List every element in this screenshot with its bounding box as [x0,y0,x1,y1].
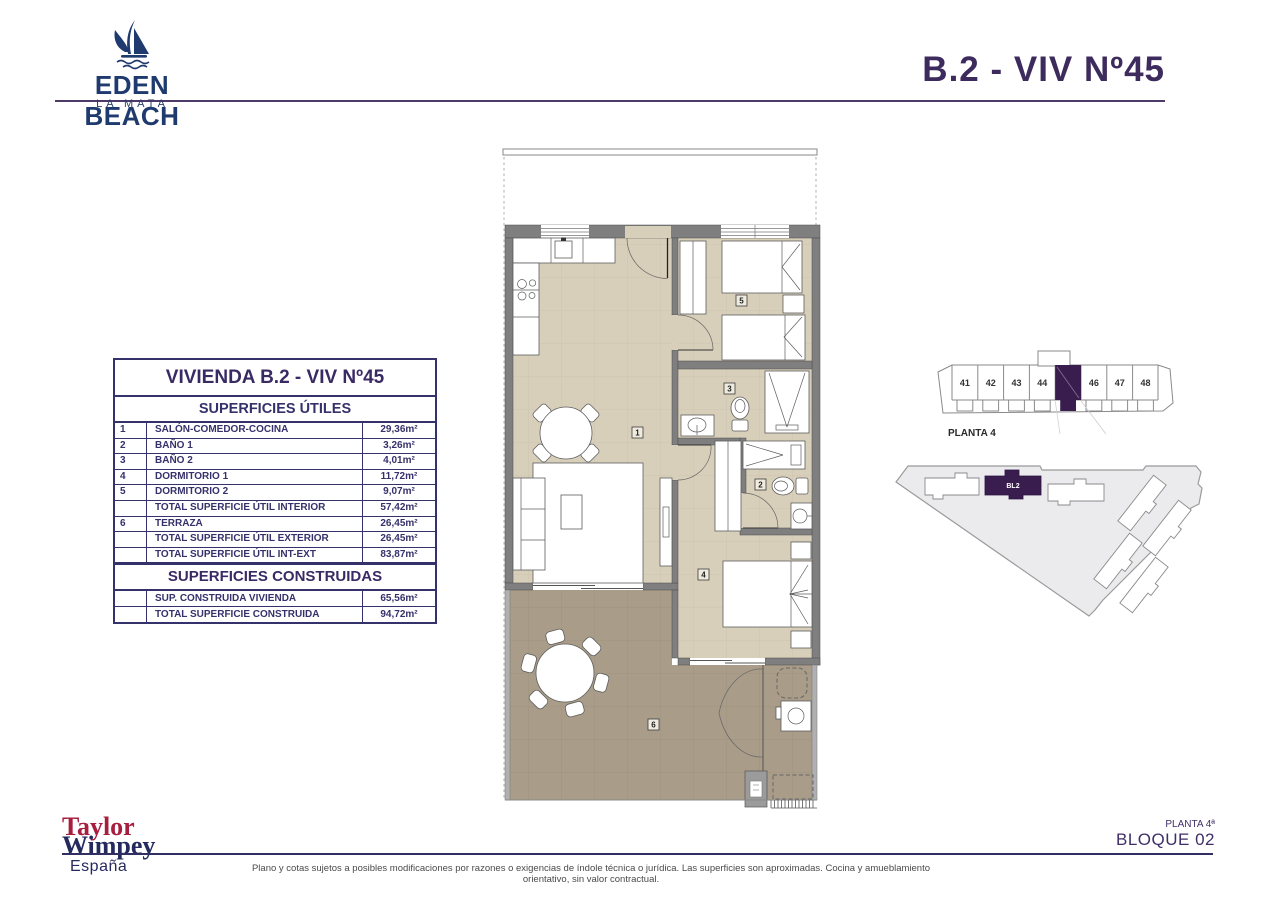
washer-icon [776,701,811,731]
svg-text:46: 46 [1089,378,1099,388]
useful-areas-table: VIVIENDA B.2 - VIV Nº45 SUPERFICIES ÚTIL… [113,358,437,564]
roof-edge [503,149,817,155]
entry-opening [625,226,671,238]
svg-text:48: 48 [1140,378,1150,388]
room-label-6: 6 [648,719,659,730]
table-row: 5DORMITORIO 29,07m² [115,485,435,501]
disclaimer-text: Plano y cotas sujetos a posibles modific… [247,863,935,885]
logo-subtitle: LA MATA [80,98,185,110]
table-title: SUPERFICIES CONSTRUIDAS [115,565,435,591]
table-row: TOTAL SUPERFICIE CONSTRUIDA94,72m² [115,607,435,622]
svg-text:1: 1 [635,429,640,438]
railing-hatch [771,800,817,808]
room-label-5: 5 [736,295,747,306]
double-bed [723,561,812,627]
svg-text:47: 47 [1115,378,1125,388]
table-row: SUP. CONSTRUIDA VIVIENDA65,56m² [115,591,435,607]
brand-country: España [70,858,127,876]
header-rule [55,100,1165,102]
block-label: BLOQUE 02 [1000,830,1215,850]
block-diagram: 41 42 43 44 46 47 48 PLANTA 4 [930,338,1190,443]
coffee-table [561,495,582,529]
page-title: B.2 - VIV Nº45 [700,50,1165,90]
table-row: TOTAL SUPERFICIE ÚTIL INTERIOR57,42m² [115,501,435,517]
room-label-2: 2 [755,479,766,490]
sink-icon [791,503,812,529]
svg-text:3: 3 [727,385,732,394]
table-row: TOTAL SUPERFICIE ÚTIL INT-EXT83,87m² [115,548,435,563]
closet [715,441,741,531]
svg-text:BL2: BL2 [1006,483,1019,490]
tv-unit [660,478,672,566]
table-row: 4DORMITORIO 111,72m² [115,470,435,486]
toilet-icon [772,477,808,495]
svg-text:2: 2 [758,481,763,490]
sofa [513,478,545,570]
svg-text:41: 41 [960,378,970,388]
wardrobe [680,241,706,314]
table-row: TOTAL SUPERFICIE ÚTIL EXTERIOR26,45m² [115,532,435,548]
shower [743,441,805,469]
sailboat-icon [103,14,161,72]
rug [533,463,643,583]
svg-text:4: 4 [701,571,706,580]
plan-sheet: EDEN BEACH LA MATA B.2 - VIV Nº45 VIVIEN… [0,0,1280,905]
room-label-4: 4 [698,569,709,580]
meter-box [745,771,767,807]
table-row: 1SALÓN-COMEDOR-COCINA29,36m² [115,423,435,439]
svg-text:5: 5 [739,297,744,306]
svg-text:44: 44 [1037,378,1047,388]
site-plan: BL2 [893,458,1213,633]
planta-caption: PLANTA 4 [948,428,996,439]
nightstand [791,542,811,559]
dining-table [532,403,601,464]
shower [765,371,809,433]
floor-label: PLANTA 4ª [1000,819,1215,830]
svg-text:42: 42 [986,378,996,388]
floor-plan: 1 2 3 4 5 6 [495,145,825,815]
nightstand [791,631,811,648]
room-label-1: 1 [632,427,643,438]
single-bed [722,315,805,360]
svg-text:6: 6 [651,721,656,730]
svg-text:43: 43 [1011,378,1021,388]
stair-core [1038,351,1070,366]
table-row: 6TERRAZA26,45m² [115,517,435,533]
footer-rule [62,853,1213,855]
sink-icon [681,415,714,436]
room-label-3: 3 [724,383,735,394]
single-bed [722,241,802,293]
table-row: 2BAÑO 13,26m² [115,439,435,455]
table-title: VIVIENDA B.2 - VIV Nº45 [115,360,435,397]
table-subtitle: SUPERFICIES ÚTILES [115,397,435,423]
built-areas-table: SUPERFICIES CONSTRUIDAS SUP. CONSTRUIDA … [113,563,437,624]
nightstand [783,295,804,313]
table-row: 3BAÑO 24,01m² [115,454,435,470]
toilet-icon [731,397,749,431]
